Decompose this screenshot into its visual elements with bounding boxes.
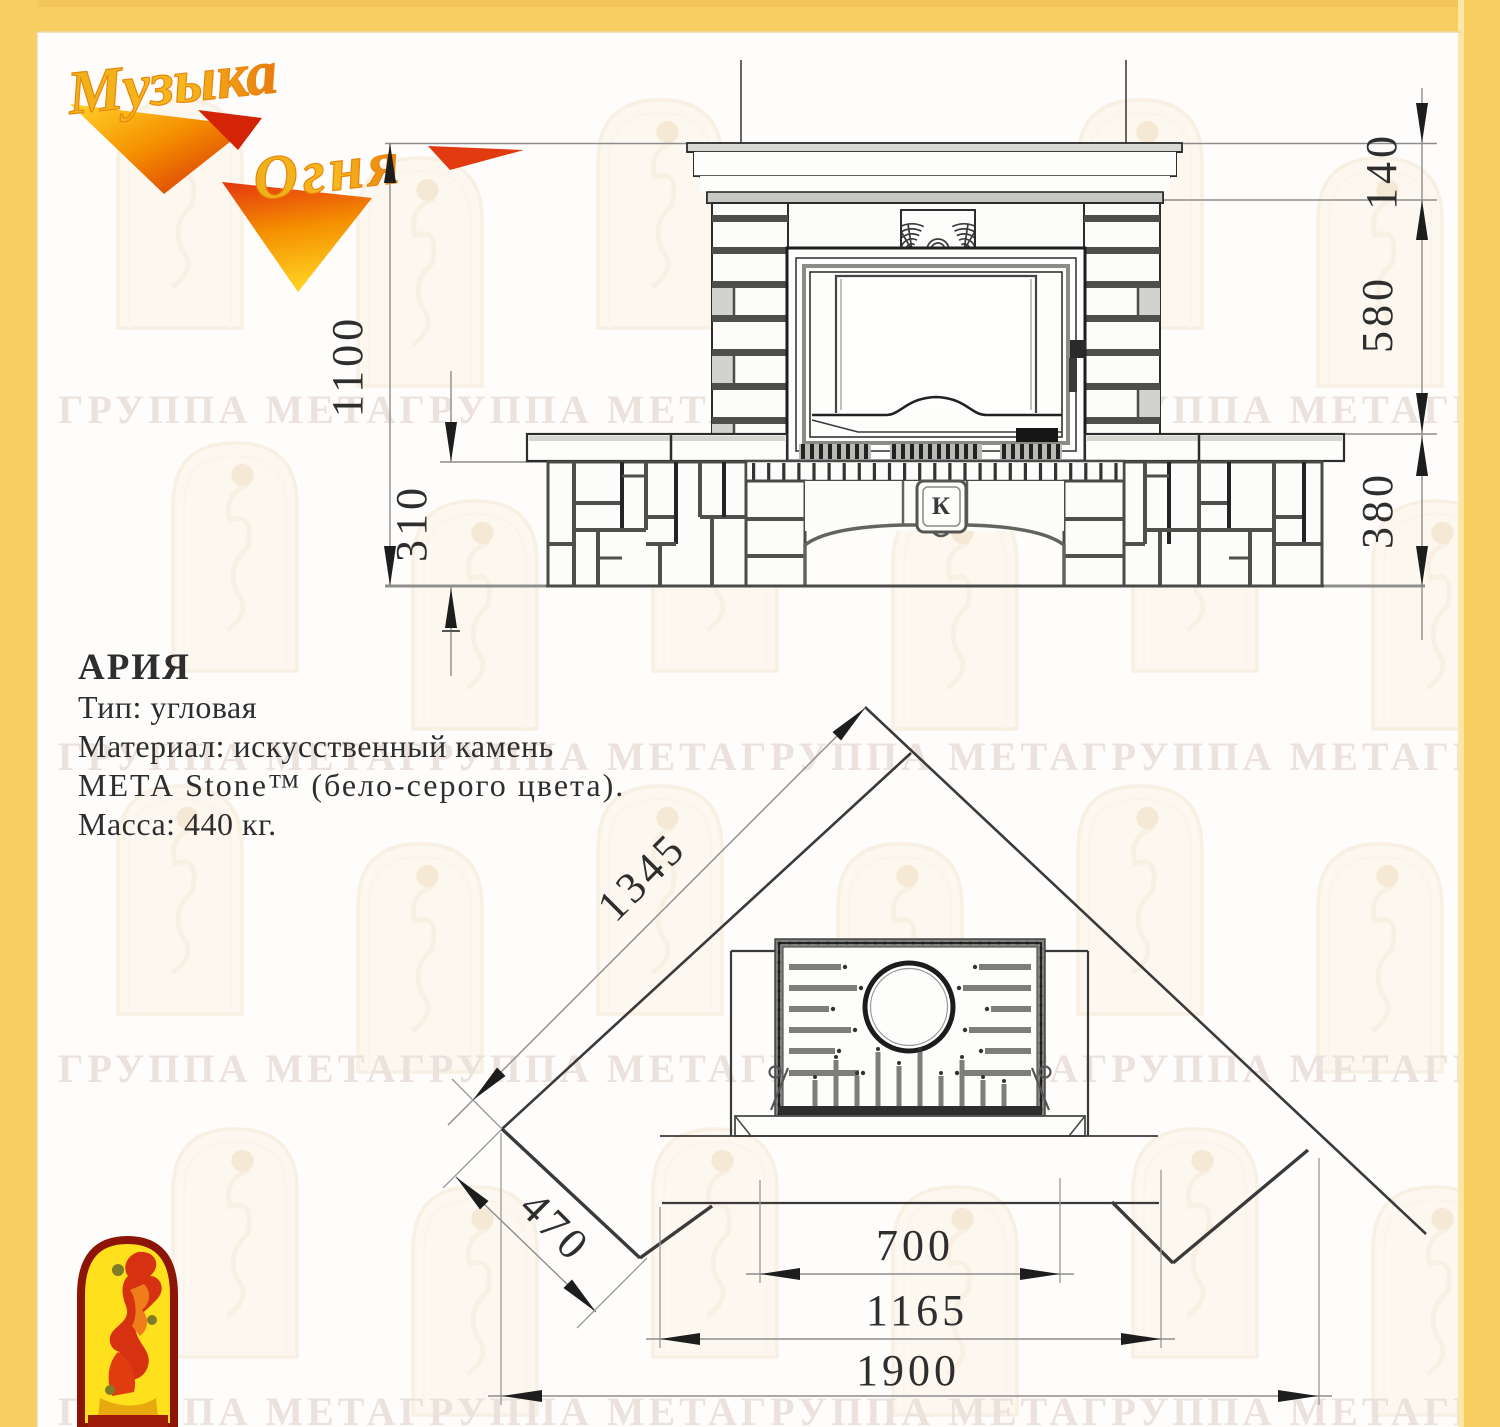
svg-text:Тип: угловая: Тип: угловая <box>78 689 257 725</box>
svg-text:Материал: искусственный камень: Материал: искусственный камень <box>78 728 554 764</box>
svg-text:Масса: 440 кг.: Масса: 440 кг. <box>78 806 277 842</box>
svg-text:МЕТА Stone™ (бело-серого цвета: МЕТА Stone™ (бело-серого цвета). <box>78 767 625 803</box>
svg-text:700: 700 <box>876 1221 954 1270</box>
svg-text:АРИЯ: АРИЯ <box>78 647 191 688</box>
svg-text:140: 140 <box>1357 132 1406 210</box>
svg-text:580: 580 <box>1353 275 1402 353</box>
svg-text:1100: 1100 <box>323 315 372 417</box>
svg-text:1165: 1165 <box>866 1286 968 1335</box>
svg-text:1900: 1900 <box>856 1346 960 1395</box>
svg-text:310: 310 <box>387 484 436 562</box>
svg-text:380: 380 <box>1353 471 1402 549</box>
svg-text:К: К <box>932 493 950 520</box>
